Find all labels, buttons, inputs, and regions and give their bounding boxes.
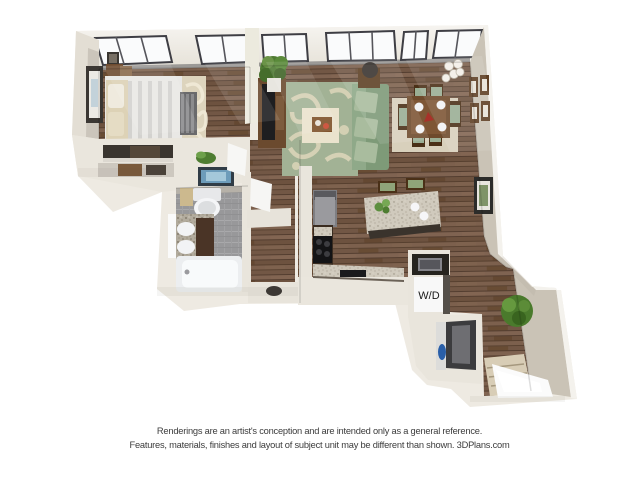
- svg-text:W/D: W/D: [418, 290, 439, 302]
